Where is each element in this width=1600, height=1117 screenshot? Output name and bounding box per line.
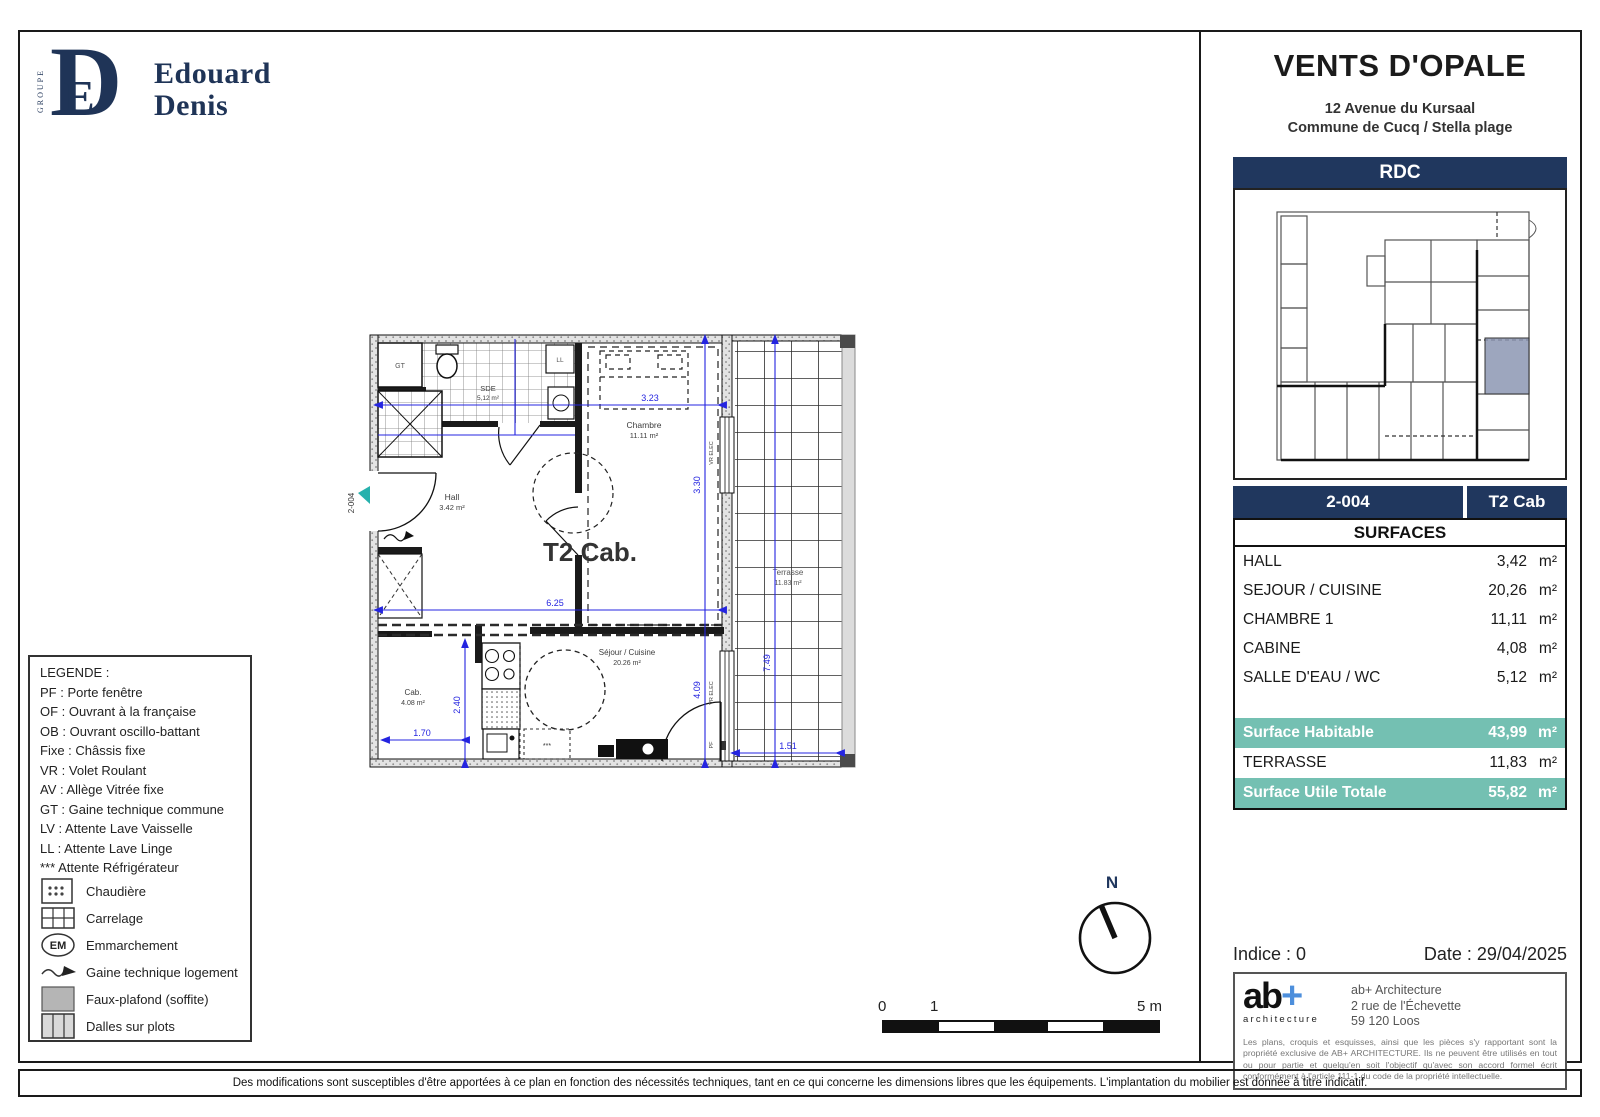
level-header: RDC xyxy=(1233,157,1567,188)
terrace-edge xyxy=(842,335,855,767)
footer-disclaimer: Des modifications sont susceptibles d'êt… xyxy=(18,1069,1582,1097)
surfaces-title: SURFACES xyxy=(1235,520,1565,547)
svg-text:1.70: 1.70 xyxy=(413,728,431,738)
ll-label: LL xyxy=(556,357,564,364)
logo-groupe-text: GROUPE xyxy=(36,56,45,126)
rdc-thumbnail-plan xyxy=(1235,190,1565,478)
svg-text:3.23: 3.23 xyxy=(641,393,659,403)
svg-text:EM: EM xyxy=(50,940,67,952)
shower xyxy=(378,391,442,457)
project-title: VENTS D'OPALE xyxy=(1200,48,1600,84)
rdc-highlighted-unit xyxy=(1485,338,1529,394)
bathroom-door xyxy=(499,425,540,465)
unit-type-label: T2 Cab. xyxy=(543,537,637,567)
bedroom-window xyxy=(720,417,734,493)
surface-habitable-row: Surface Habitable 43,99 m² xyxy=(1235,718,1565,748)
rdc-thumbnail-box xyxy=(1233,188,1567,480)
entrance-unit-tag: 2-004 xyxy=(347,492,356,513)
terrasse-row: TERRASSE 11,83 m² xyxy=(1235,748,1565,778)
logo-monogram-e: E xyxy=(64,70,95,123)
legend-title: LEGENDE : xyxy=(40,663,250,683)
svg-text:7.49: 7.49 xyxy=(762,654,772,672)
table-row: HALL 3,42 m² xyxy=(1235,547,1565,576)
svg-text:20.26 m²: 20.26 m² xyxy=(613,660,641,667)
table-row: SALLE D'EAU / WC 5,12 m² xyxy=(1235,663,1565,692)
terrace-decking xyxy=(735,339,842,762)
bathroom-sink xyxy=(548,387,574,419)
duct-arrow xyxy=(384,531,414,541)
terrace-door xyxy=(662,702,721,761)
svg-text:3.30: 3.30 xyxy=(692,476,702,494)
ab-architecture-logo: ab+ architecture xyxy=(1243,980,1351,1032)
hall-closet xyxy=(378,554,422,618)
room-label-cab: Cab. xyxy=(405,688,422,697)
edouard-denis-logo: GROUPE D E Edouard Denis xyxy=(36,44,286,136)
fridge-label: *** xyxy=(543,743,551,750)
table-row: SEJOUR / CUISINE 20,26 m² xyxy=(1235,576,1565,605)
entrance-opening xyxy=(369,471,379,531)
living-room-french-window xyxy=(720,651,734,761)
room-label-hall: Hall xyxy=(445,492,460,502)
legend: LEGENDE : PF : Porte fenêtre OF : Ouvran… xyxy=(28,655,252,1042)
svg-text:11.83 m²: 11.83 m² xyxy=(774,580,802,587)
vr-elec-label: VR ELEC xyxy=(709,681,715,705)
panel-divider xyxy=(1199,30,1201,1063)
project-address: 12 Avenue du Kursaal Commune de Cucq / S… xyxy=(1200,100,1600,138)
svg-text:4.09: 4.09 xyxy=(692,681,702,699)
armchair xyxy=(533,453,613,533)
indice-label: Indice : 0 xyxy=(1233,944,1306,965)
svg-text:1.51: 1.51 xyxy=(779,741,797,751)
indice-date-row: Indice : 0 Date : 29/04/2025 xyxy=(1233,944,1567,965)
svg-text:6.25: 6.25 xyxy=(546,598,564,608)
unit-type: T2 Cab xyxy=(1467,486,1567,518)
north-arrow: N xyxy=(1068,866,1164,984)
slabs-icon xyxy=(40,1012,78,1040)
logo-name: Edouard Denis xyxy=(154,58,271,122)
svg-text:5,12 m²: 5,12 m² xyxy=(477,395,500,402)
table-row: CHAMBRE 1 11,11 m² xyxy=(1235,605,1565,634)
tiling-icon xyxy=(40,904,78,932)
washing-machine: LL xyxy=(546,345,574,373)
entrance-door xyxy=(378,473,436,531)
boiler-icon xyxy=(40,877,78,905)
dining-table xyxy=(525,650,605,730)
tv-unit xyxy=(598,739,668,759)
surface-utile-row: Surface Utile Totale 55,82 m² xyxy=(1235,778,1565,808)
pf-label: PF xyxy=(709,741,715,749)
floor-plan: GT LL xyxy=(340,320,865,780)
date-label: Date : 29/04/2025 xyxy=(1424,944,1567,965)
toilet xyxy=(436,345,458,378)
room-label-sejour: Séjour / Cuisine xyxy=(599,648,656,657)
svg-text:2.40: 2.40 xyxy=(452,696,462,714)
scale-bar: 0 1 5 m xyxy=(876,998,1162,1038)
plan-sheet: GROUPE D E Edouard Denis VENTS D'OPALE 1… xyxy=(0,0,1600,1117)
table-row: CABINE 4,08 m² xyxy=(1235,634,1565,663)
surfaces-table: SURFACES HALL 3,42 m² SEJOUR / CUISINE 2… xyxy=(1233,518,1567,810)
kitchen-block xyxy=(482,643,520,759)
vr-elec-label: VR ELEC xyxy=(709,441,715,465)
unit-number: 2-004 xyxy=(1233,486,1463,518)
fridge-slot: *** xyxy=(524,729,570,759)
soffit-icon xyxy=(40,985,78,1013)
svg-text:3.42 m²: 3.42 m² xyxy=(439,503,465,512)
unit-header: 2-004 T2 Cab xyxy=(1233,486,1567,518)
room-label-sde: SDE xyxy=(480,384,495,393)
architect-address: ab+ Architecture 2 rue de l'Échevette 59… xyxy=(1351,980,1461,1030)
duct-icon xyxy=(40,958,78,986)
gt-label: GT xyxy=(395,363,405,370)
room-label-terrasse: Terrasse xyxy=(773,568,804,577)
room-label-chambre: Chambre xyxy=(627,420,662,430)
north-label: N xyxy=(1106,873,1118,892)
step-icon: EM xyxy=(40,931,78,959)
svg-text:11.11 m²: 11.11 m² xyxy=(630,431,659,440)
logo-monogram: D E xyxy=(50,30,148,134)
svg-text:4.08 m²: 4.08 m² xyxy=(401,700,425,707)
entrance-marker-icon xyxy=(358,486,370,504)
